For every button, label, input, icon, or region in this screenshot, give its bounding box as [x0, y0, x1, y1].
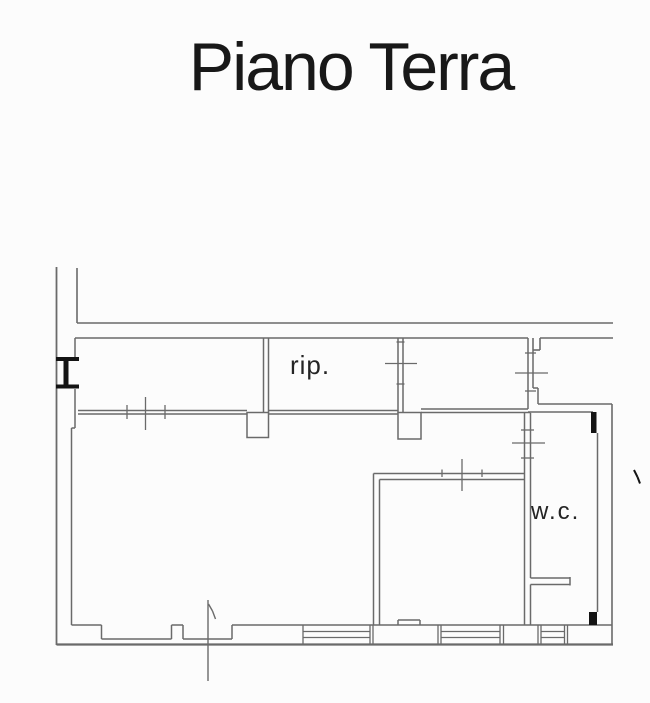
pillar-left: [247, 413, 269, 438]
room-label-wc: w.c.: [530, 498, 580, 525]
wc-left-wall: [525, 413, 531, 626]
page-title: Piano Terra: [189, 29, 516, 105]
pillar-right: [398, 413, 421, 440]
rip-right-wall: [398, 338, 403, 413]
bottom-room-door-tick: [442, 459, 482, 491]
wc-upper-door-tick: [515, 353, 548, 391]
wc-dark-corner-top: [591, 412, 597, 433]
left-window-symbol: [56, 357, 79, 389]
rip-door-tick: [385, 342, 417, 384]
bottom-room-walls: [374, 474, 525, 626]
floor-plan: Piano Terra rip.w.c.: [0, 0, 650, 703]
bottom-window-symbol-3: [538, 625, 568, 644]
entrance-door-swing: [208, 600, 216, 681]
wc-stub-wall: [531, 577, 571, 586]
left-inner-wall: [72, 338, 76, 625]
room-label-rip: rip.: [290, 350, 330, 380]
bottom-window-symbol-1: [303, 625, 373, 644]
floor-plan-page: Piano Terra rip.w.c.: [0, 0, 650, 703]
bottom-window-symbol-2: [438, 625, 504, 644]
rip-left-wall: [264, 338, 269, 413]
top-wall: [75, 323, 613, 350]
wc-dark-corner-bottom: [589, 612, 597, 625]
right-edge-mark: [634, 470, 640, 484]
wc-door-tick: [512, 430, 545, 458]
